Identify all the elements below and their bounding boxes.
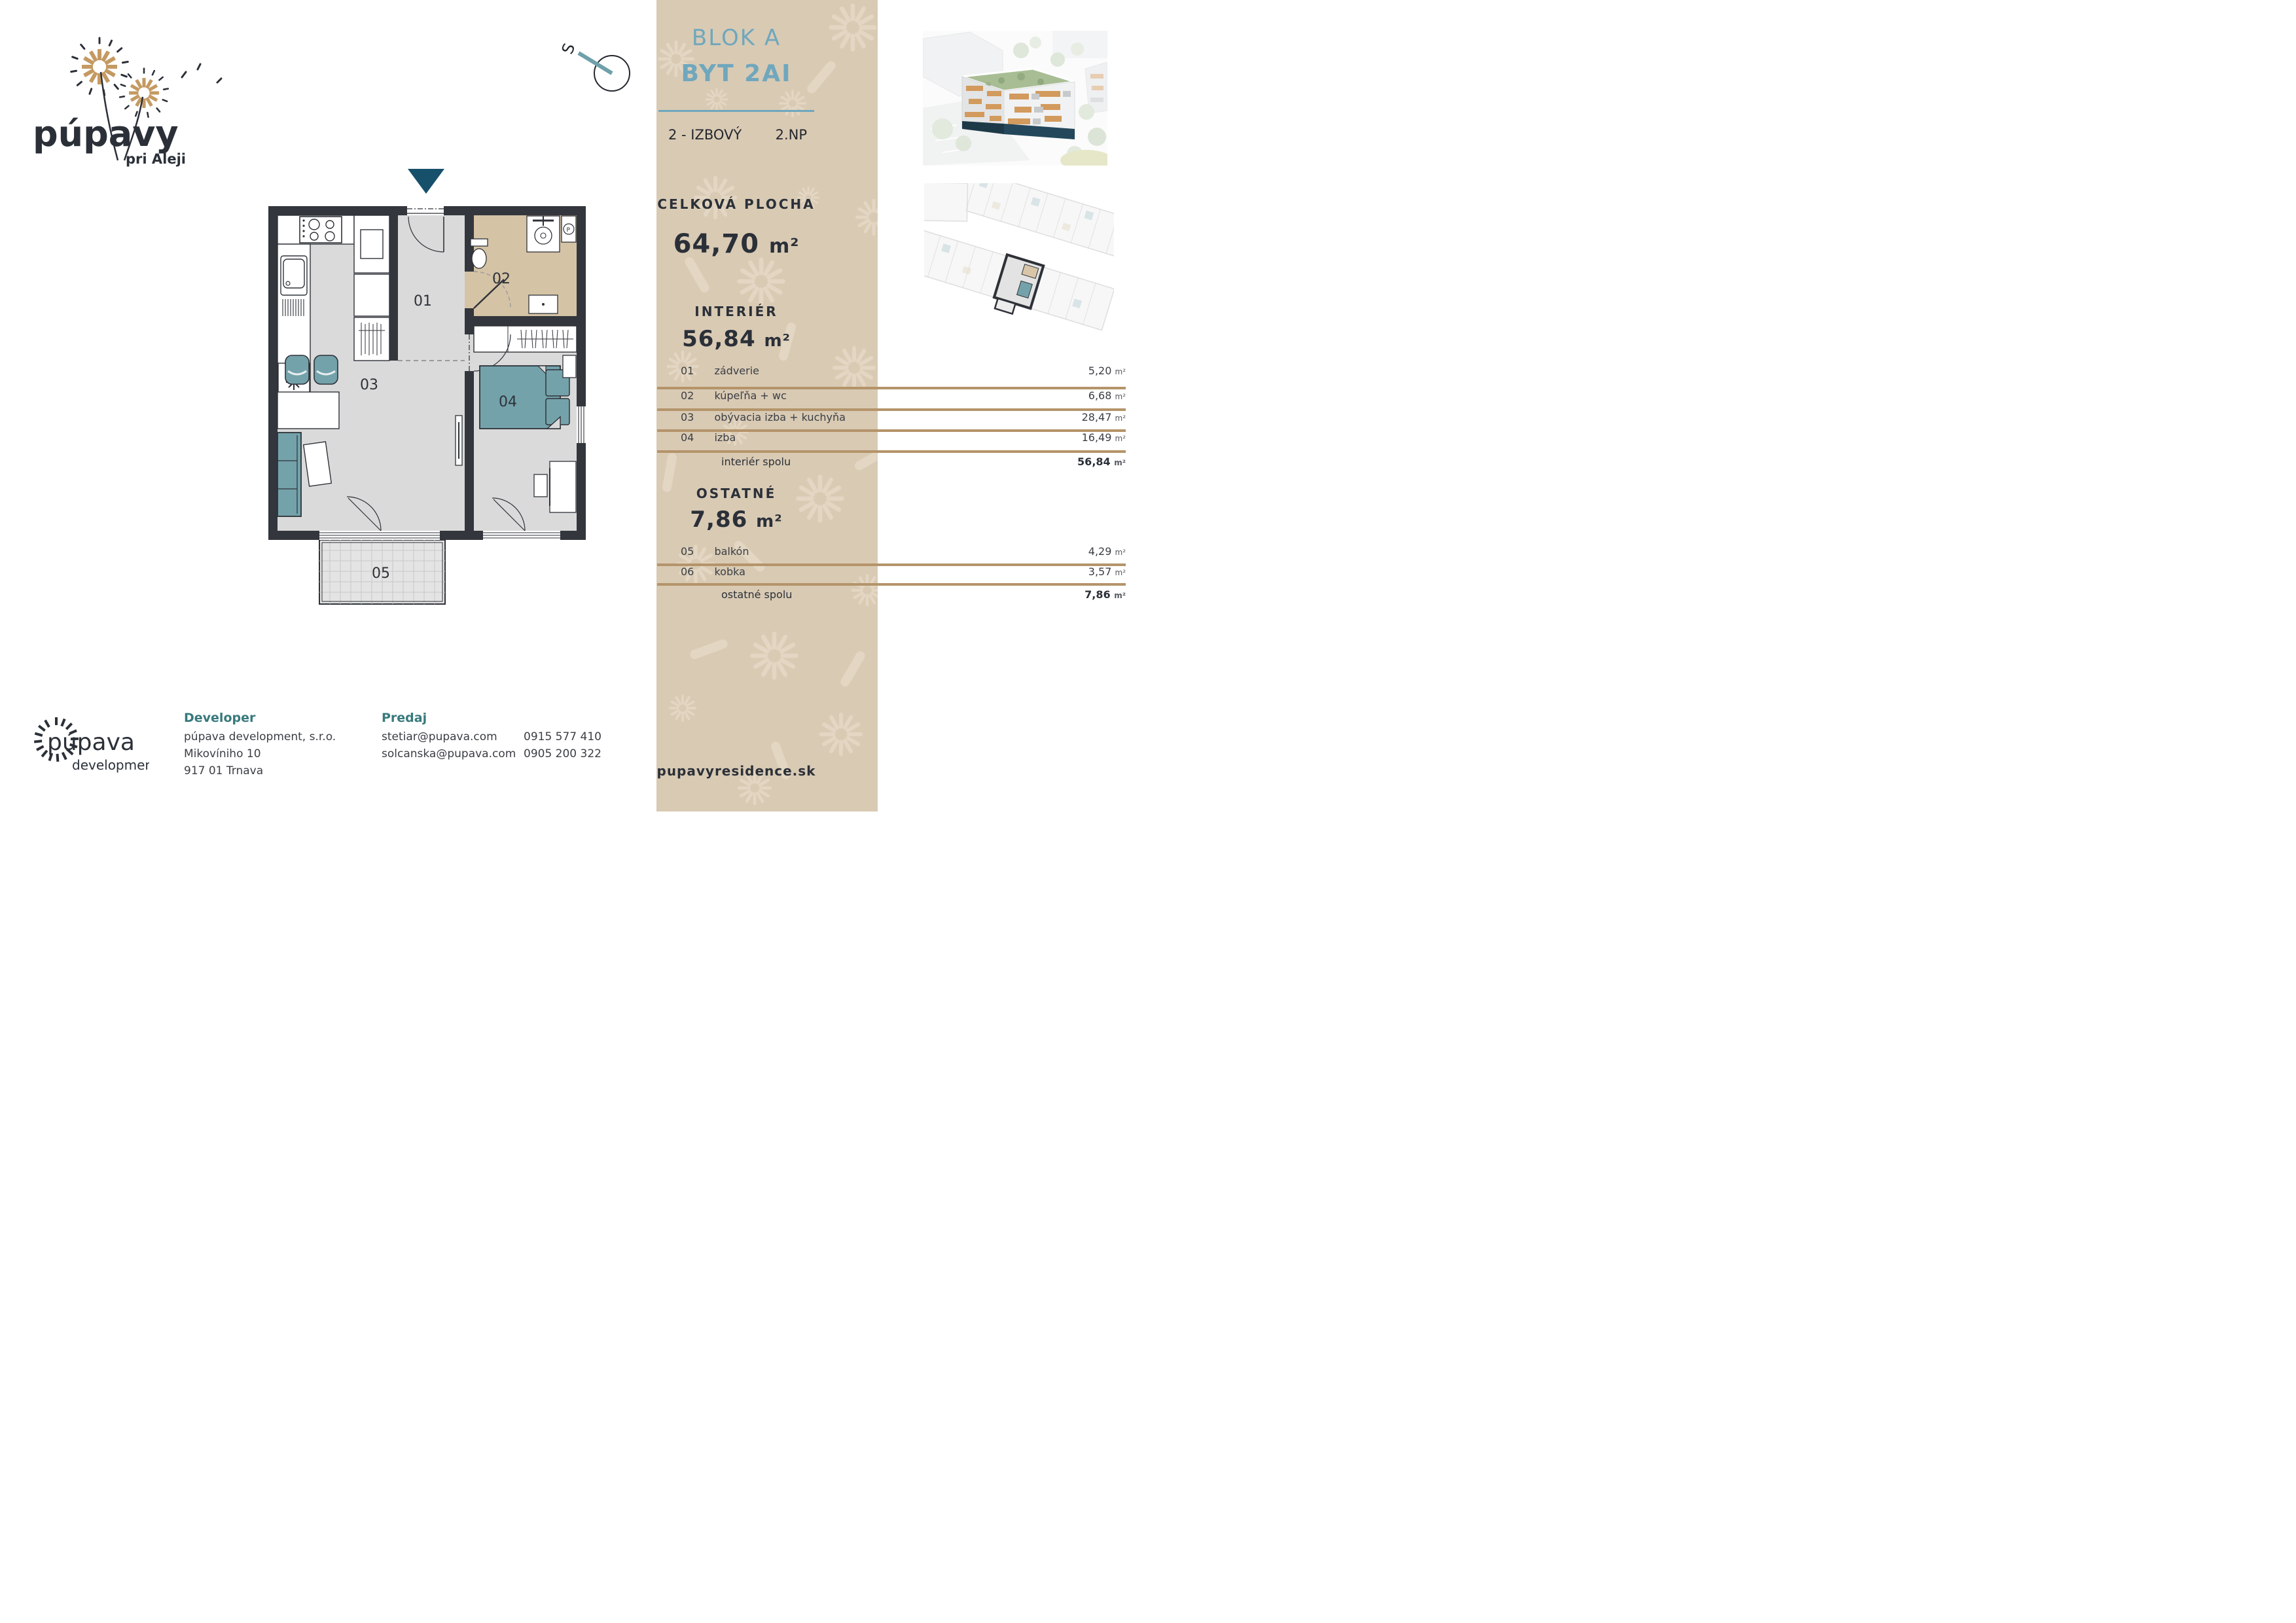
floor-overview-plan	[924, 183, 1114, 370]
developer-label: Developer	[184, 711, 255, 725]
room-label-04: 04	[499, 394, 517, 410]
unit-type-row: 2 - IZBOVÝ 2.NP	[656, 127, 816, 143]
logo-subtitle: pri Aleji	[126, 151, 186, 167]
header-divider	[658, 110, 814, 112]
room-label-05: 05	[372, 565, 390, 582]
other-label: OSTATNÉ	[656, 486, 816, 501]
bed	[480, 366, 569, 429]
interior-total-row: interiér spolu 56,84 m²	[657, 455, 1126, 470]
total-area-value: 64,70 m²	[656, 229, 816, 259]
website-link[interactable]: pupavyresidence.sk	[656, 763, 816, 779]
dandelion-pattern	[656, 0, 878, 811]
tv-stand	[456, 416, 462, 465]
block-title: BLOK A	[656, 25, 816, 51]
logo-title: púpavy	[33, 113, 179, 154]
sofa	[278, 433, 301, 516]
footer-logo-word2: development	[72, 757, 149, 773]
table-row: 02 kúpeľňa + wc 6,68 m²	[657, 389, 1126, 404]
footer-logo-word1: púpava	[47, 729, 135, 756]
entrance-arrow-icon	[408, 169, 444, 194]
table-row: 05 balkón 4,29 m²	[657, 545, 1126, 560]
compass-icon: S	[550, 33, 648, 105]
main-building	[962, 69, 1075, 139]
apartment-datasheet: púpavy pri Aleji S	[0, 0, 1148, 811]
interior-label: INTERIÉR	[656, 304, 816, 319]
room-label-03: 03	[360, 377, 378, 393]
sales-phone-1: 0915 577 410	[524, 730, 601, 743]
table-row: 04 izba 16,49 m²	[657, 431, 1126, 446]
room-label-02: 02	[492, 271, 511, 287]
other-total-row: ostatné spolu 7,86 m²	[657, 588, 1126, 603]
unit-title: BYT 2AI	[656, 60, 816, 87]
interior-value: 56,84 m²	[656, 326, 816, 352]
sales-email-2[interactable]: solcanska@pupava.com	[382, 747, 516, 760]
pupavy-logo: púpavy pri Aleji	[26, 26, 288, 167]
developer-company: púpava development, s.r.o.	[184, 730, 336, 743]
developer-city: 917 01 Trnava	[184, 764, 263, 777]
unit-type: 2 - IZBOVÝ	[668, 127, 742, 143]
other-value: 7,86 m²	[656, 507, 816, 533]
table-row: 03 obývacia izba + kuchyňa 28,47 m²	[657, 411, 1126, 425]
pupava-development-logo: púpava development	[31, 713, 149, 792]
table-divider	[657, 583, 1126, 586]
hall-closet	[354, 215, 389, 361]
building-render-illustration	[923, 31, 1107, 166]
stove-icon	[300, 217, 342, 243]
info-panel-background	[656, 0, 878, 811]
room-label-01: 01	[414, 293, 432, 310]
floor-plan: P	[268, 166, 586, 612]
table-divider	[657, 450, 1126, 453]
developer-street: Mikovíniho 10	[184, 747, 261, 760]
unit-floor: 2.NP	[776, 127, 807, 143]
sales-label: Predaj	[382, 711, 427, 725]
compass-north-label: S	[558, 41, 579, 57]
svg-text:P: P	[567, 227, 571, 234]
table-row: 06 kobka 3,57 m²	[657, 565, 1126, 580]
washing-machine-icon: P	[562, 216, 576, 242]
sales-email-1[interactable]: stetiar@pupava.com	[382, 730, 497, 743]
total-area-label: CELKOVÁ PLOCHA	[656, 196, 816, 212]
sales-phone-2: 0905 200 322	[524, 747, 601, 760]
